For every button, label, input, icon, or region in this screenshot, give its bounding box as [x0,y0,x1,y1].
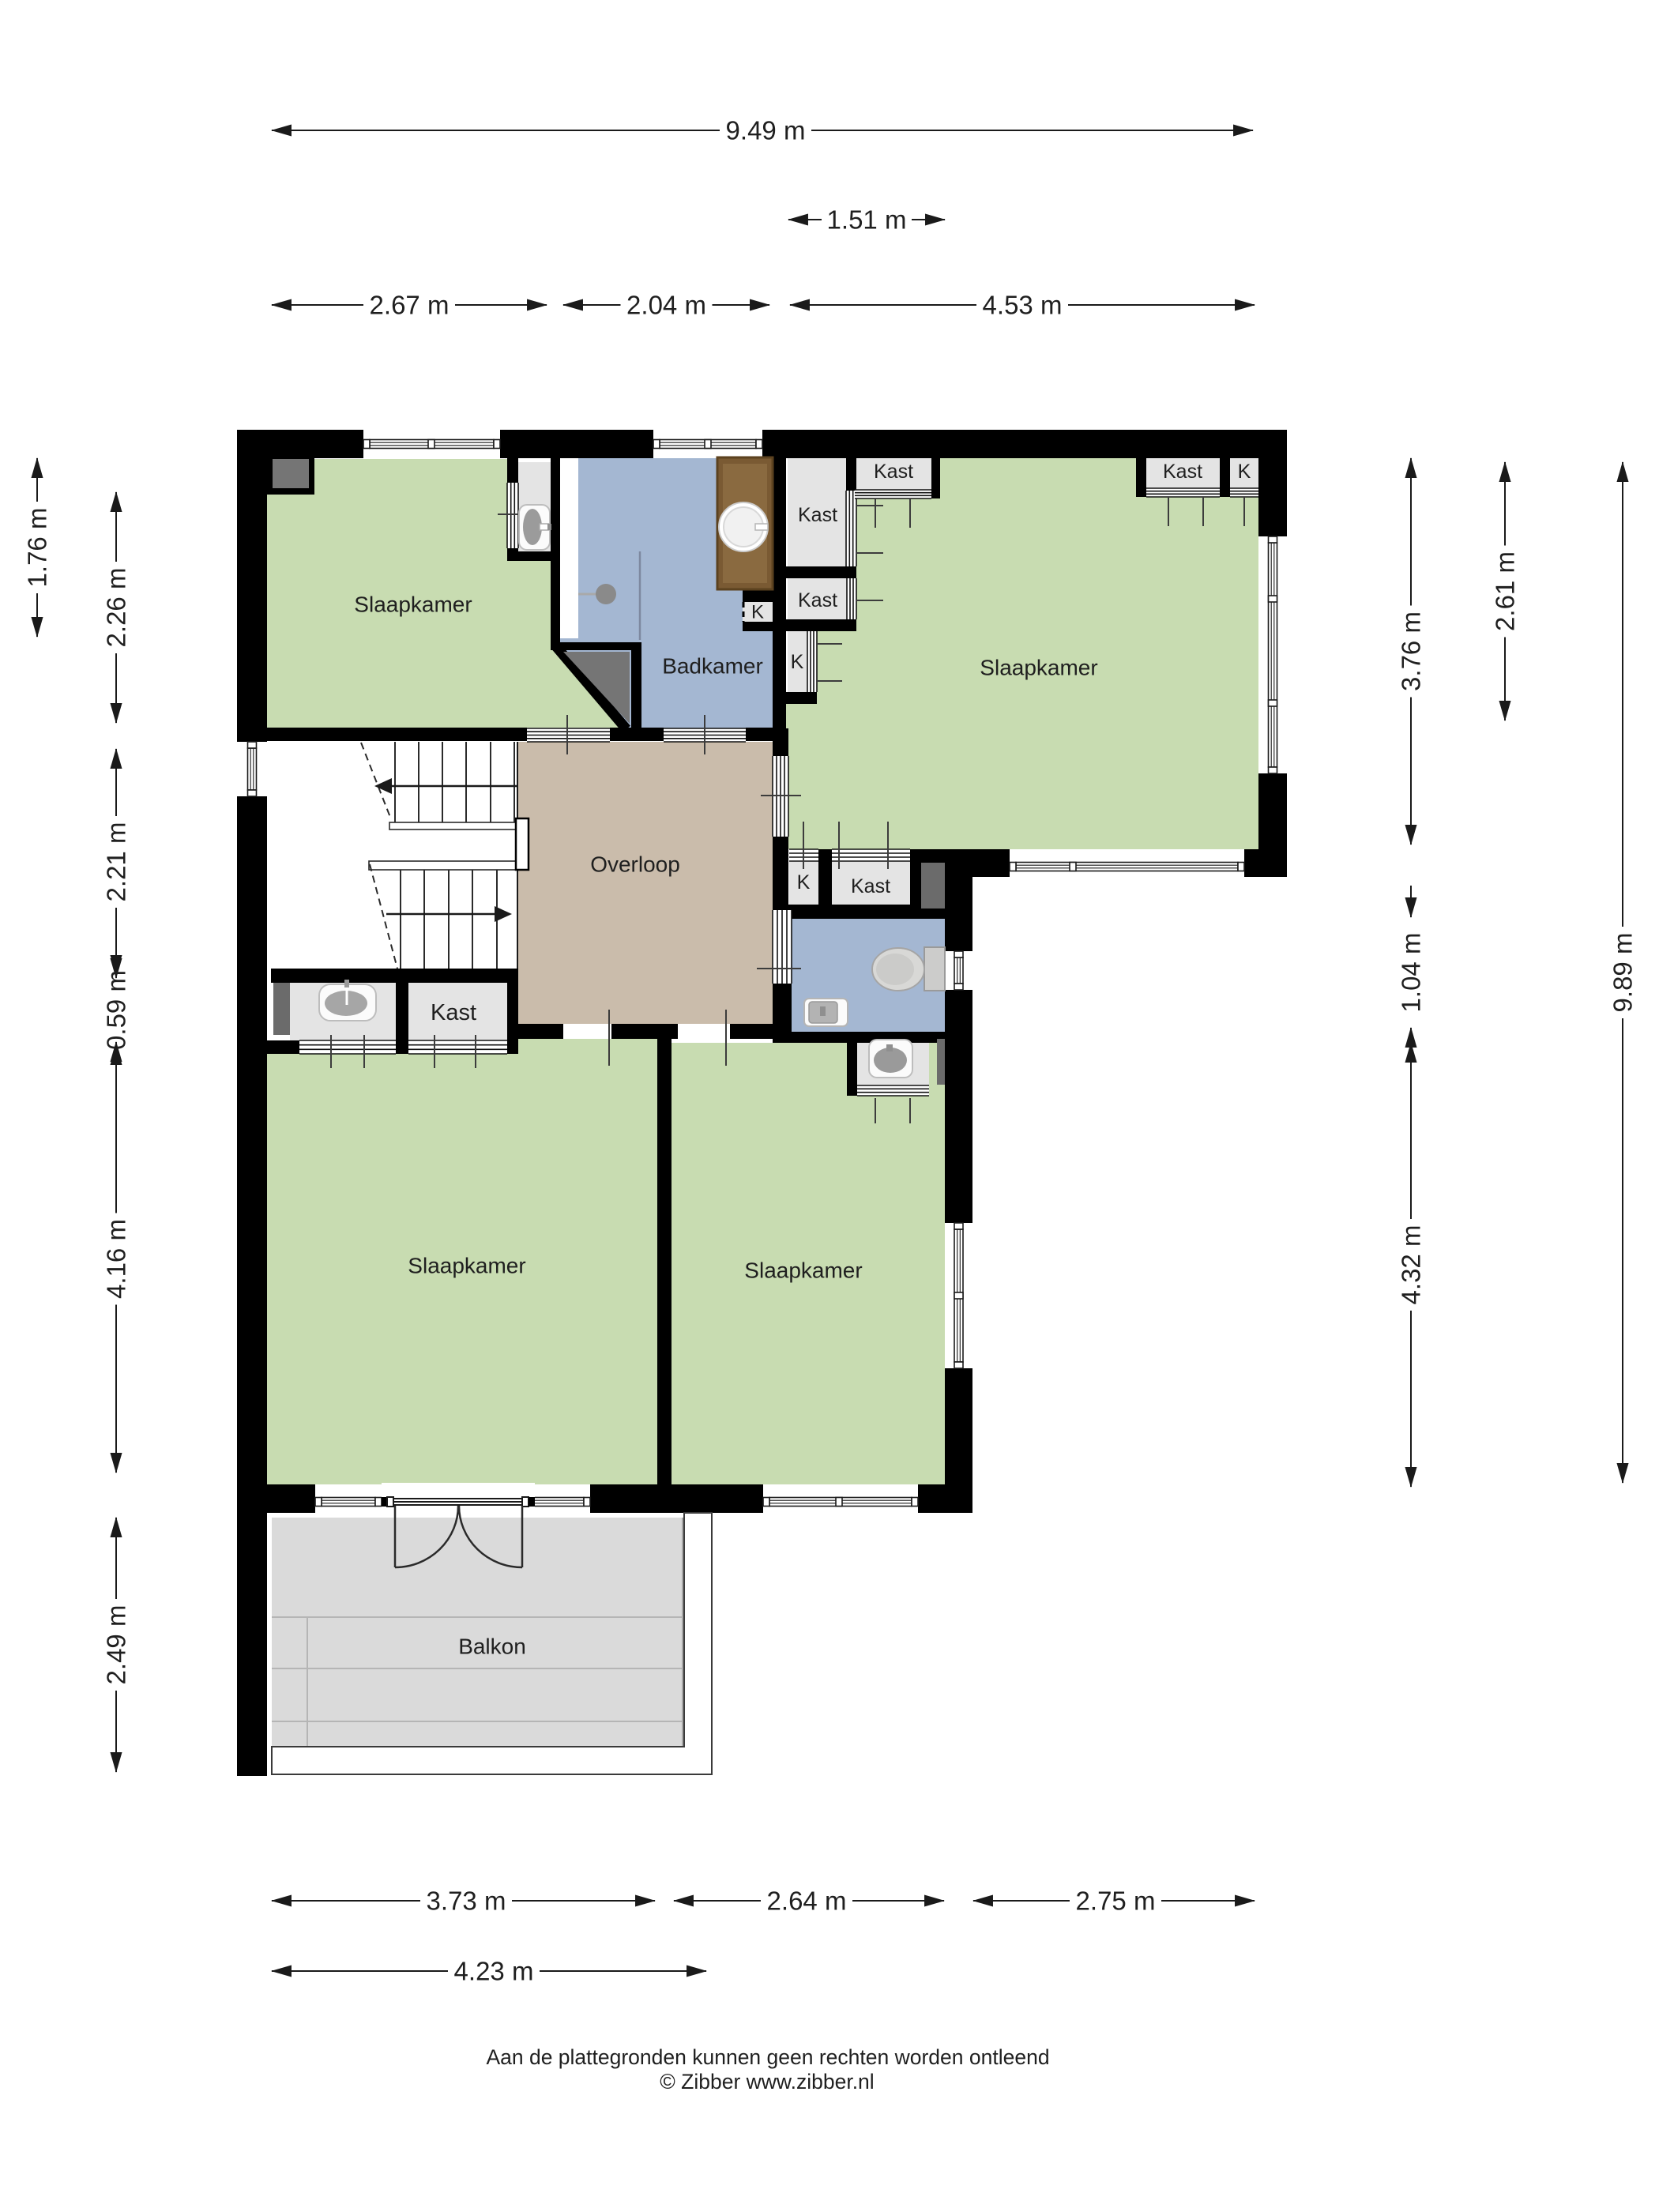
svg-text:0.59 m: 0.59 m [102,970,131,1050]
svg-text:Kast: Kast [1163,461,1202,483]
svg-text:4.23 m: 4.23 m [454,1957,534,1986]
svg-text:Slaapkamer: Slaapkamer [980,656,1097,680]
svg-text:9.89 m: 9.89 m [1608,933,1638,1013]
svg-text:4.16 m: 4.16 m [102,1219,131,1299]
svg-text:K: K [751,602,764,623]
svg-text:1.04 m: 1.04 m [1397,933,1426,1013]
svg-text:Slaapkamer: Slaapkamer [744,1258,862,1283]
svg-text:2.75 m: 2.75 m [1076,1887,1156,1916]
svg-text:© Zibber www.zibber.nl: © Zibber www.zibber.nl [660,2070,874,2093]
svg-text:2.26 m: 2.26 m [102,568,131,648]
svg-text:2.21 m: 2.21 m [102,822,131,902]
svg-text:Badkamer: Badkamer [662,654,763,679]
svg-text:3.73 m: 3.73 m [427,1887,506,1916]
svg-text:Aan de plattegronden kunnen ge: Aan de plattegronden kunnen geen rechten… [486,2045,1049,2069]
svg-text:Balkon: Balkon [458,1635,526,1659]
svg-text:3.76 m: 3.76 m [1397,611,1426,691]
svg-text:Kast: Kast [874,461,913,483]
svg-text:2.04 m: 2.04 m [626,291,706,320]
svg-text:1.76 m: 1.76 m [23,508,52,588]
svg-text:K: K [791,651,804,673]
svg-text:4.53 m: 4.53 m [983,291,1063,320]
svg-text:1.51 m: 1.51 m [827,205,907,235]
svg-text:2.64 m: 2.64 m [767,1887,847,1916]
svg-text:2.49 m: 2.49 m [102,1605,131,1685]
svg-text:Slaapkamer: Slaapkamer [354,592,472,617]
svg-text:Slaapkamer: Slaapkamer [408,1254,525,1278]
svg-text:K: K [1238,461,1251,483]
svg-text:Kast: Kast [431,1000,476,1025]
svg-text:K: K [797,871,811,893]
svg-text:Kast: Kast [851,875,890,897]
svg-text:Overloop: Overloop [590,852,680,877]
svg-text:2.67 m: 2.67 m [370,291,450,320]
svg-text:9.49 m: 9.49 m [726,116,806,145]
svg-text:4.32 m: 4.32 m [1397,1225,1426,1305]
svg-text:Kast: Kast [798,504,837,526]
svg-text:Kast: Kast [798,589,837,611]
svg-text:2.61 m: 2.61 m [1491,551,1520,631]
